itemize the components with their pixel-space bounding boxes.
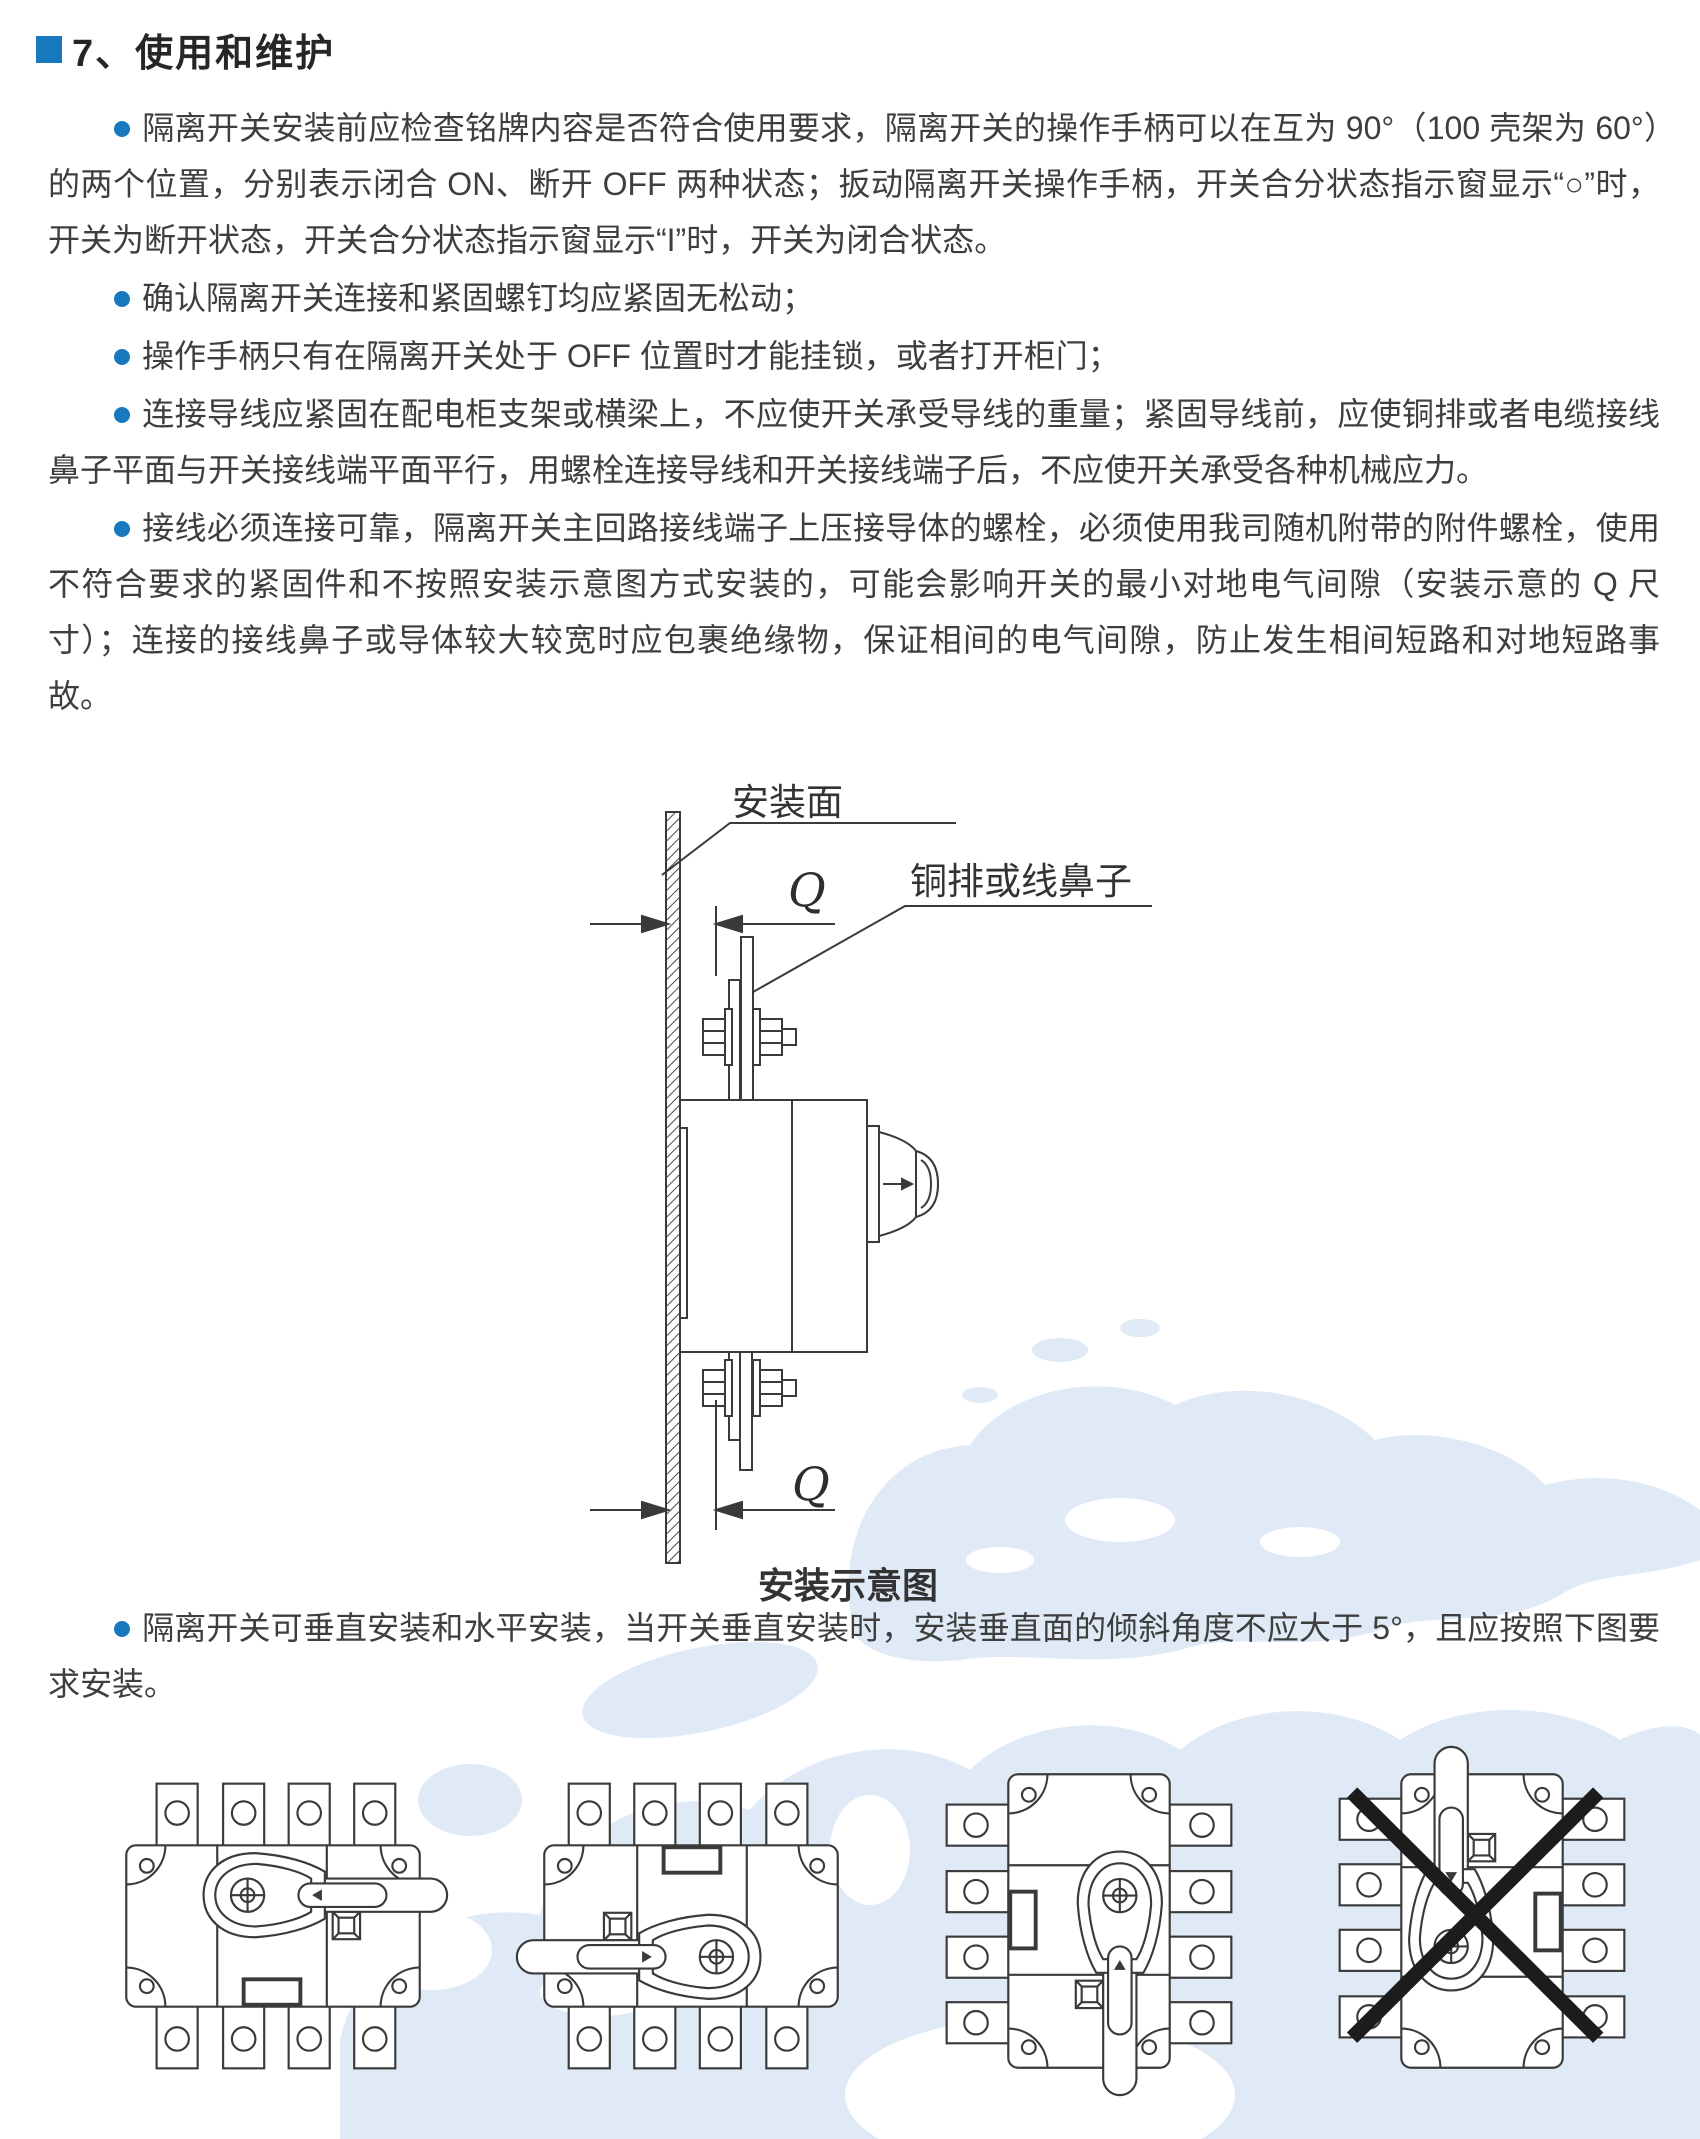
bullet-paragraph: 操作手柄只有在隔离开关处于 OFF 位置时才能挂锁，或者打开柜门； bbox=[48, 328, 1660, 384]
side-handle bbox=[867, 1126, 938, 1242]
orientation-horizontal-handle-right bbox=[48, 1762, 498, 2090]
dimension-q-top: Q bbox=[788, 863, 826, 917]
installation-diagram: 安装面 铜排或线鼻子 Q Q 安装示意图 bbox=[440, 760, 1320, 1640]
bullet-paragraph: 隔离开关安装前应检查铭牌内容是否符合使用要求，隔离开关的操作手柄可以在互为 90… bbox=[48, 100, 1660, 268]
bullet-paragraph: 确认隔离开关连接和紧固螺钉均应紧固无松动； bbox=[48, 270, 1660, 326]
installation-figure: 安装面 铜排或线鼻子 Q Q 安装示意图 bbox=[440, 760, 1320, 1640]
label-mounting-surface: 安装面 bbox=[732, 782, 843, 823]
bullet-icon bbox=[114, 349, 130, 365]
orientation-vertical-handle-up-forbidden bbox=[1318, 1696, 1646, 2139]
body-text: 隔离开关安装前应检查铭牌内容是否符合使用要求，隔离开关的操作手柄可以在互为 90… bbox=[48, 100, 1660, 726]
switch-side-body bbox=[680, 1100, 867, 1352]
paragraph-text: 接线必须连接可靠，隔离开关主回路接线端子上压接导体的螺栓，必须使用我司随机附带的… bbox=[48, 510, 1660, 714]
bullet-paragraph: 连接导线应紧固在配电柜支架或横梁上，不应使开关承受导线的重量；紧固导线前，应使铜… bbox=[48, 386, 1660, 498]
bullet-icon bbox=[114, 121, 130, 137]
bullet-icon bbox=[114, 407, 130, 423]
paragraph-text: 连接导线应紧固在配电柜支架或横梁上，不应使开关承受导线的重量；紧固导线前，应使铜… bbox=[48, 396, 1660, 488]
orientation-horizontal-handle-left bbox=[466, 1762, 916, 2090]
section-title: 7、使用和维护 bbox=[72, 22, 335, 77]
bullet-icon bbox=[114, 521, 130, 537]
orientation-vertical-handle-down bbox=[925, 1696, 1253, 2139]
leader-busbar bbox=[746, 906, 1152, 996]
paragraph-text: 确认隔离开关连接和紧固螺钉均应紧固无松动； bbox=[142, 280, 814, 316]
section-marker-icon bbox=[36, 36, 62, 63]
paragraph-text: 隔离开关安装前应检查铭牌内容是否符合使用要求，隔离开关的操作手柄可以在互为 90… bbox=[48, 110, 1660, 258]
manual-page: 7、使用和维护 隔离开关安装前应检查铭牌内容是否符合使用要求，隔离开关的操作手柄… bbox=[0, 0, 1700, 2139]
paragraph-text: 操作手柄只有在隔离开关处于 OFF 位置时才能挂锁，或者打开柜门； bbox=[142, 338, 1120, 374]
dimension-q-bottom: Q bbox=[792, 1457, 830, 1511]
section-header: 7、使用和维护 bbox=[36, 22, 335, 77]
bullet-icon bbox=[114, 1621, 130, 1637]
paragraph-text: 隔离开关可垂直安装和水平安装，当开关垂直安装时，安装垂直面的倾斜角度不应大于 5… bbox=[48, 1610, 1660, 1702]
bullet-icon bbox=[114, 291, 130, 307]
label-busbar-or-lug: 铜排或线鼻子 bbox=[910, 861, 1132, 902]
bullet-paragraph: 接线必须连接可靠，隔离开关主回路接线端子上压接导体的螺栓，必须使用我司随机附带的… bbox=[48, 500, 1660, 724]
